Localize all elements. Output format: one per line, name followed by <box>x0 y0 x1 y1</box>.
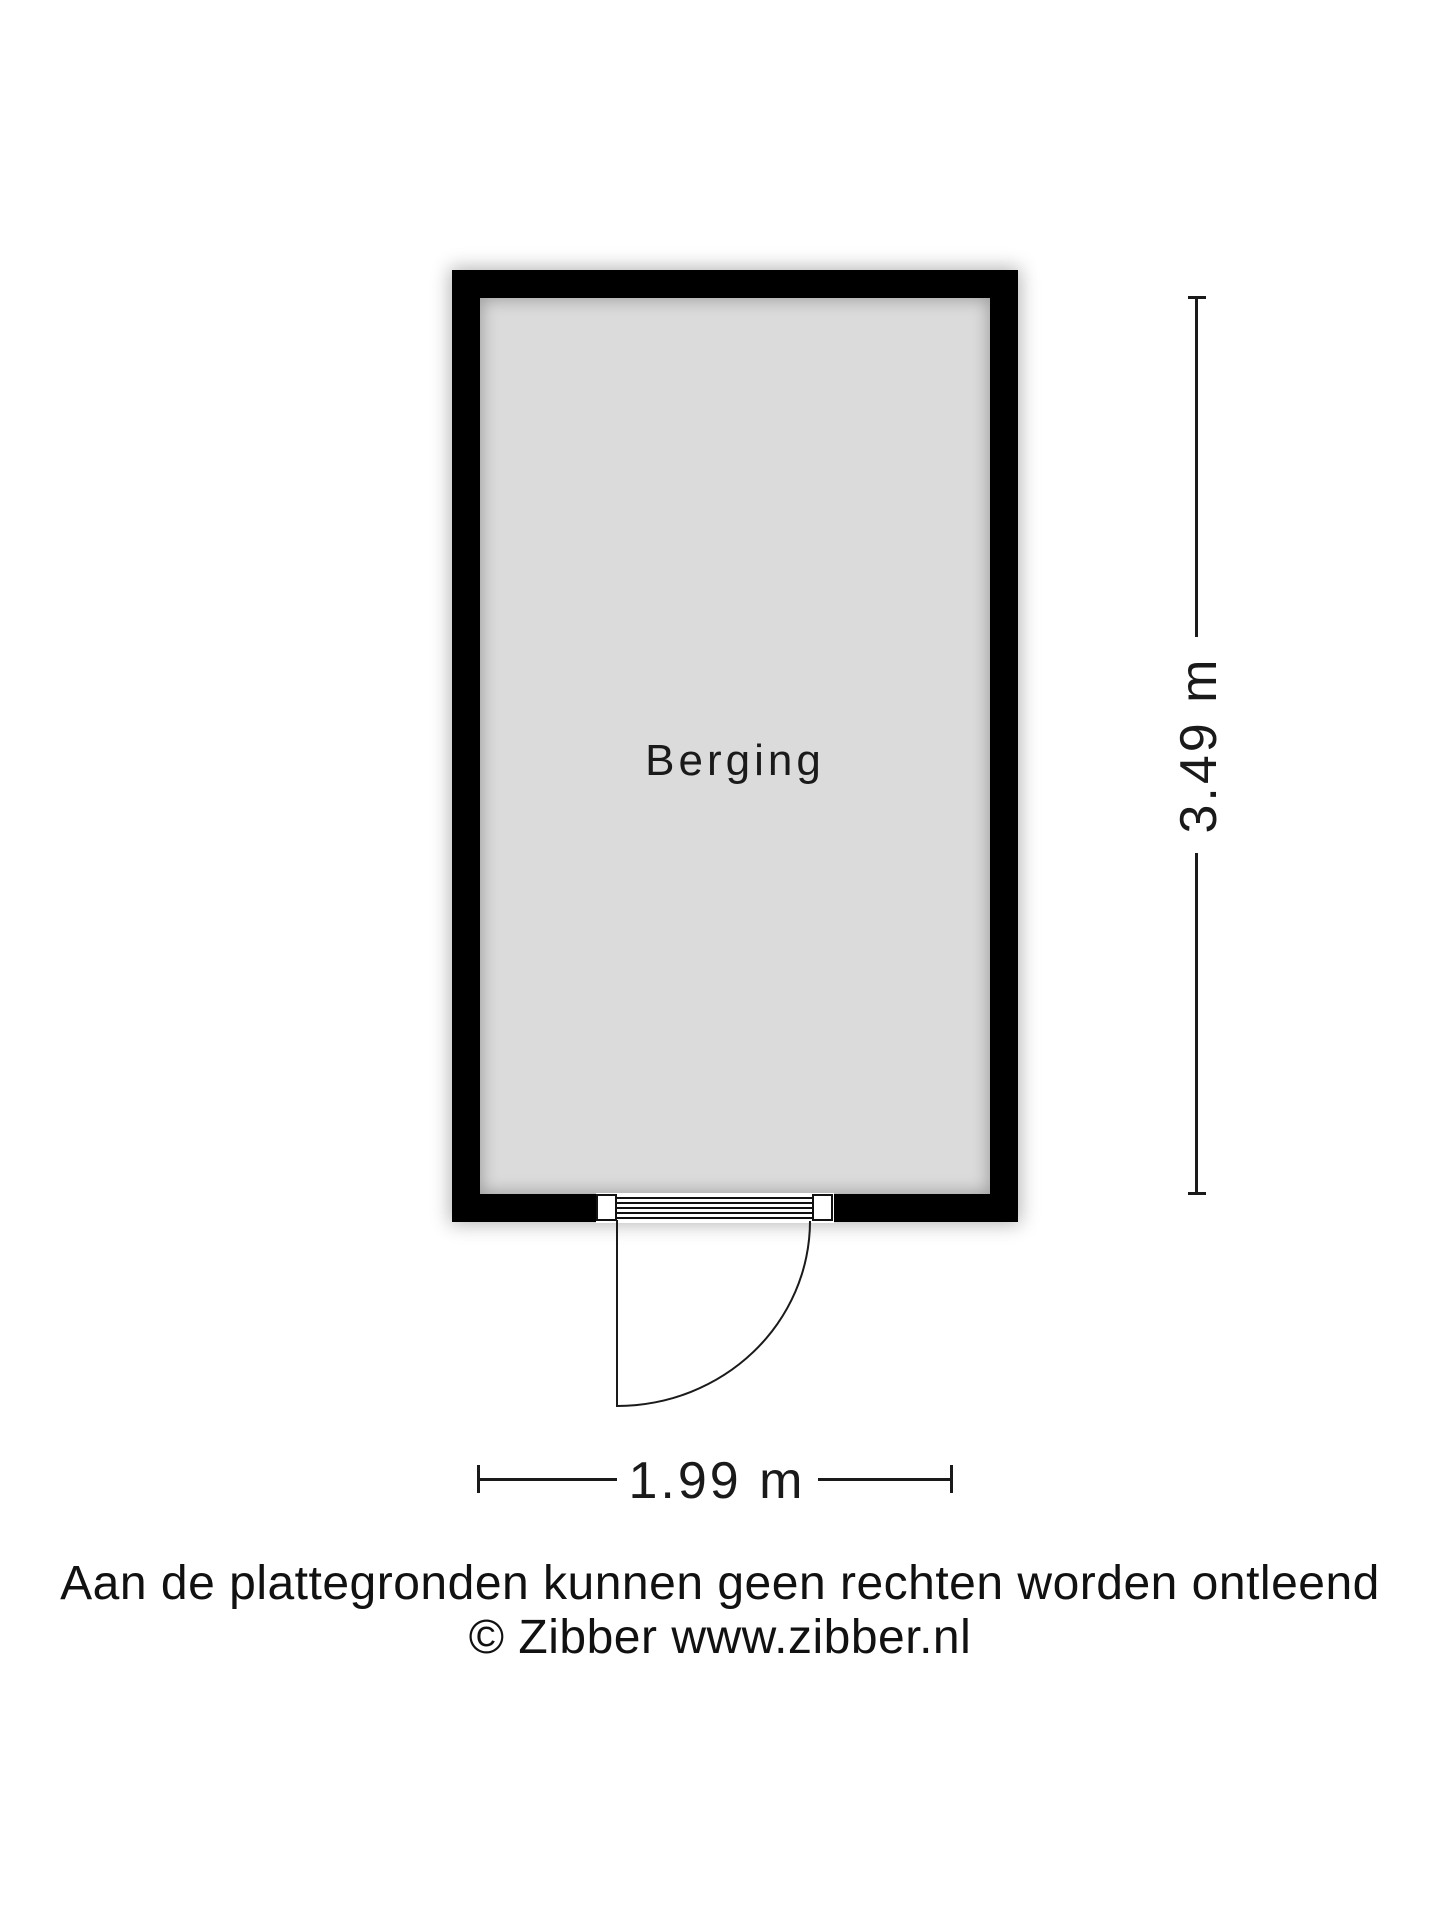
dim-horizontal-right-cap <box>950 1465 953 1493</box>
footer-disclaimer: Aan de plattegronden kunnen geen rechten… <box>0 1556 1440 1611</box>
door-panel-icon <box>617 1197 812 1219</box>
dim-vertical-top-segment <box>1195 298 1198 637</box>
dim-vertical-label: 3.49 m <box>1169 657 1229 834</box>
dim-vertical-bottom-cap <box>1188 1192 1206 1195</box>
room-label: Berging <box>480 736 990 786</box>
dim-horizontal-label: 1.99 m <box>629 1451 806 1511</box>
dim-horizontal-right-segment <box>818 1478 952 1481</box>
footer-copyright: © Zibber www.zibber.nl <box>0 1610 1440 1665</box>
dim-horizontal-left-segment <box>479 1478 617 1481</box>
floorplan-canvas: Berging 3.49 m 1.99 m Aan de plattegrond… <box>0 0 1440 1920</box>
door-jamb-left <box>596 1194 617 1221</box>
dim-vertical-bottom-segment <box>1195 853 1198 1194</box>
door-swing-arc-icon <box>617 1221 811 1407</box>
door-jamb-right <box>812 1194 833 1221</box>
